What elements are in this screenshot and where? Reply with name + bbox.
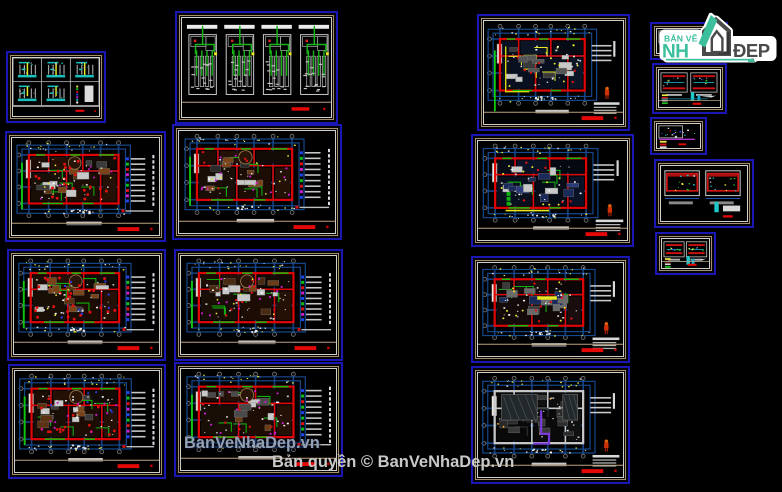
svg-text:ĐẸP: ĐẸP <box>733 40 770 61</box>
